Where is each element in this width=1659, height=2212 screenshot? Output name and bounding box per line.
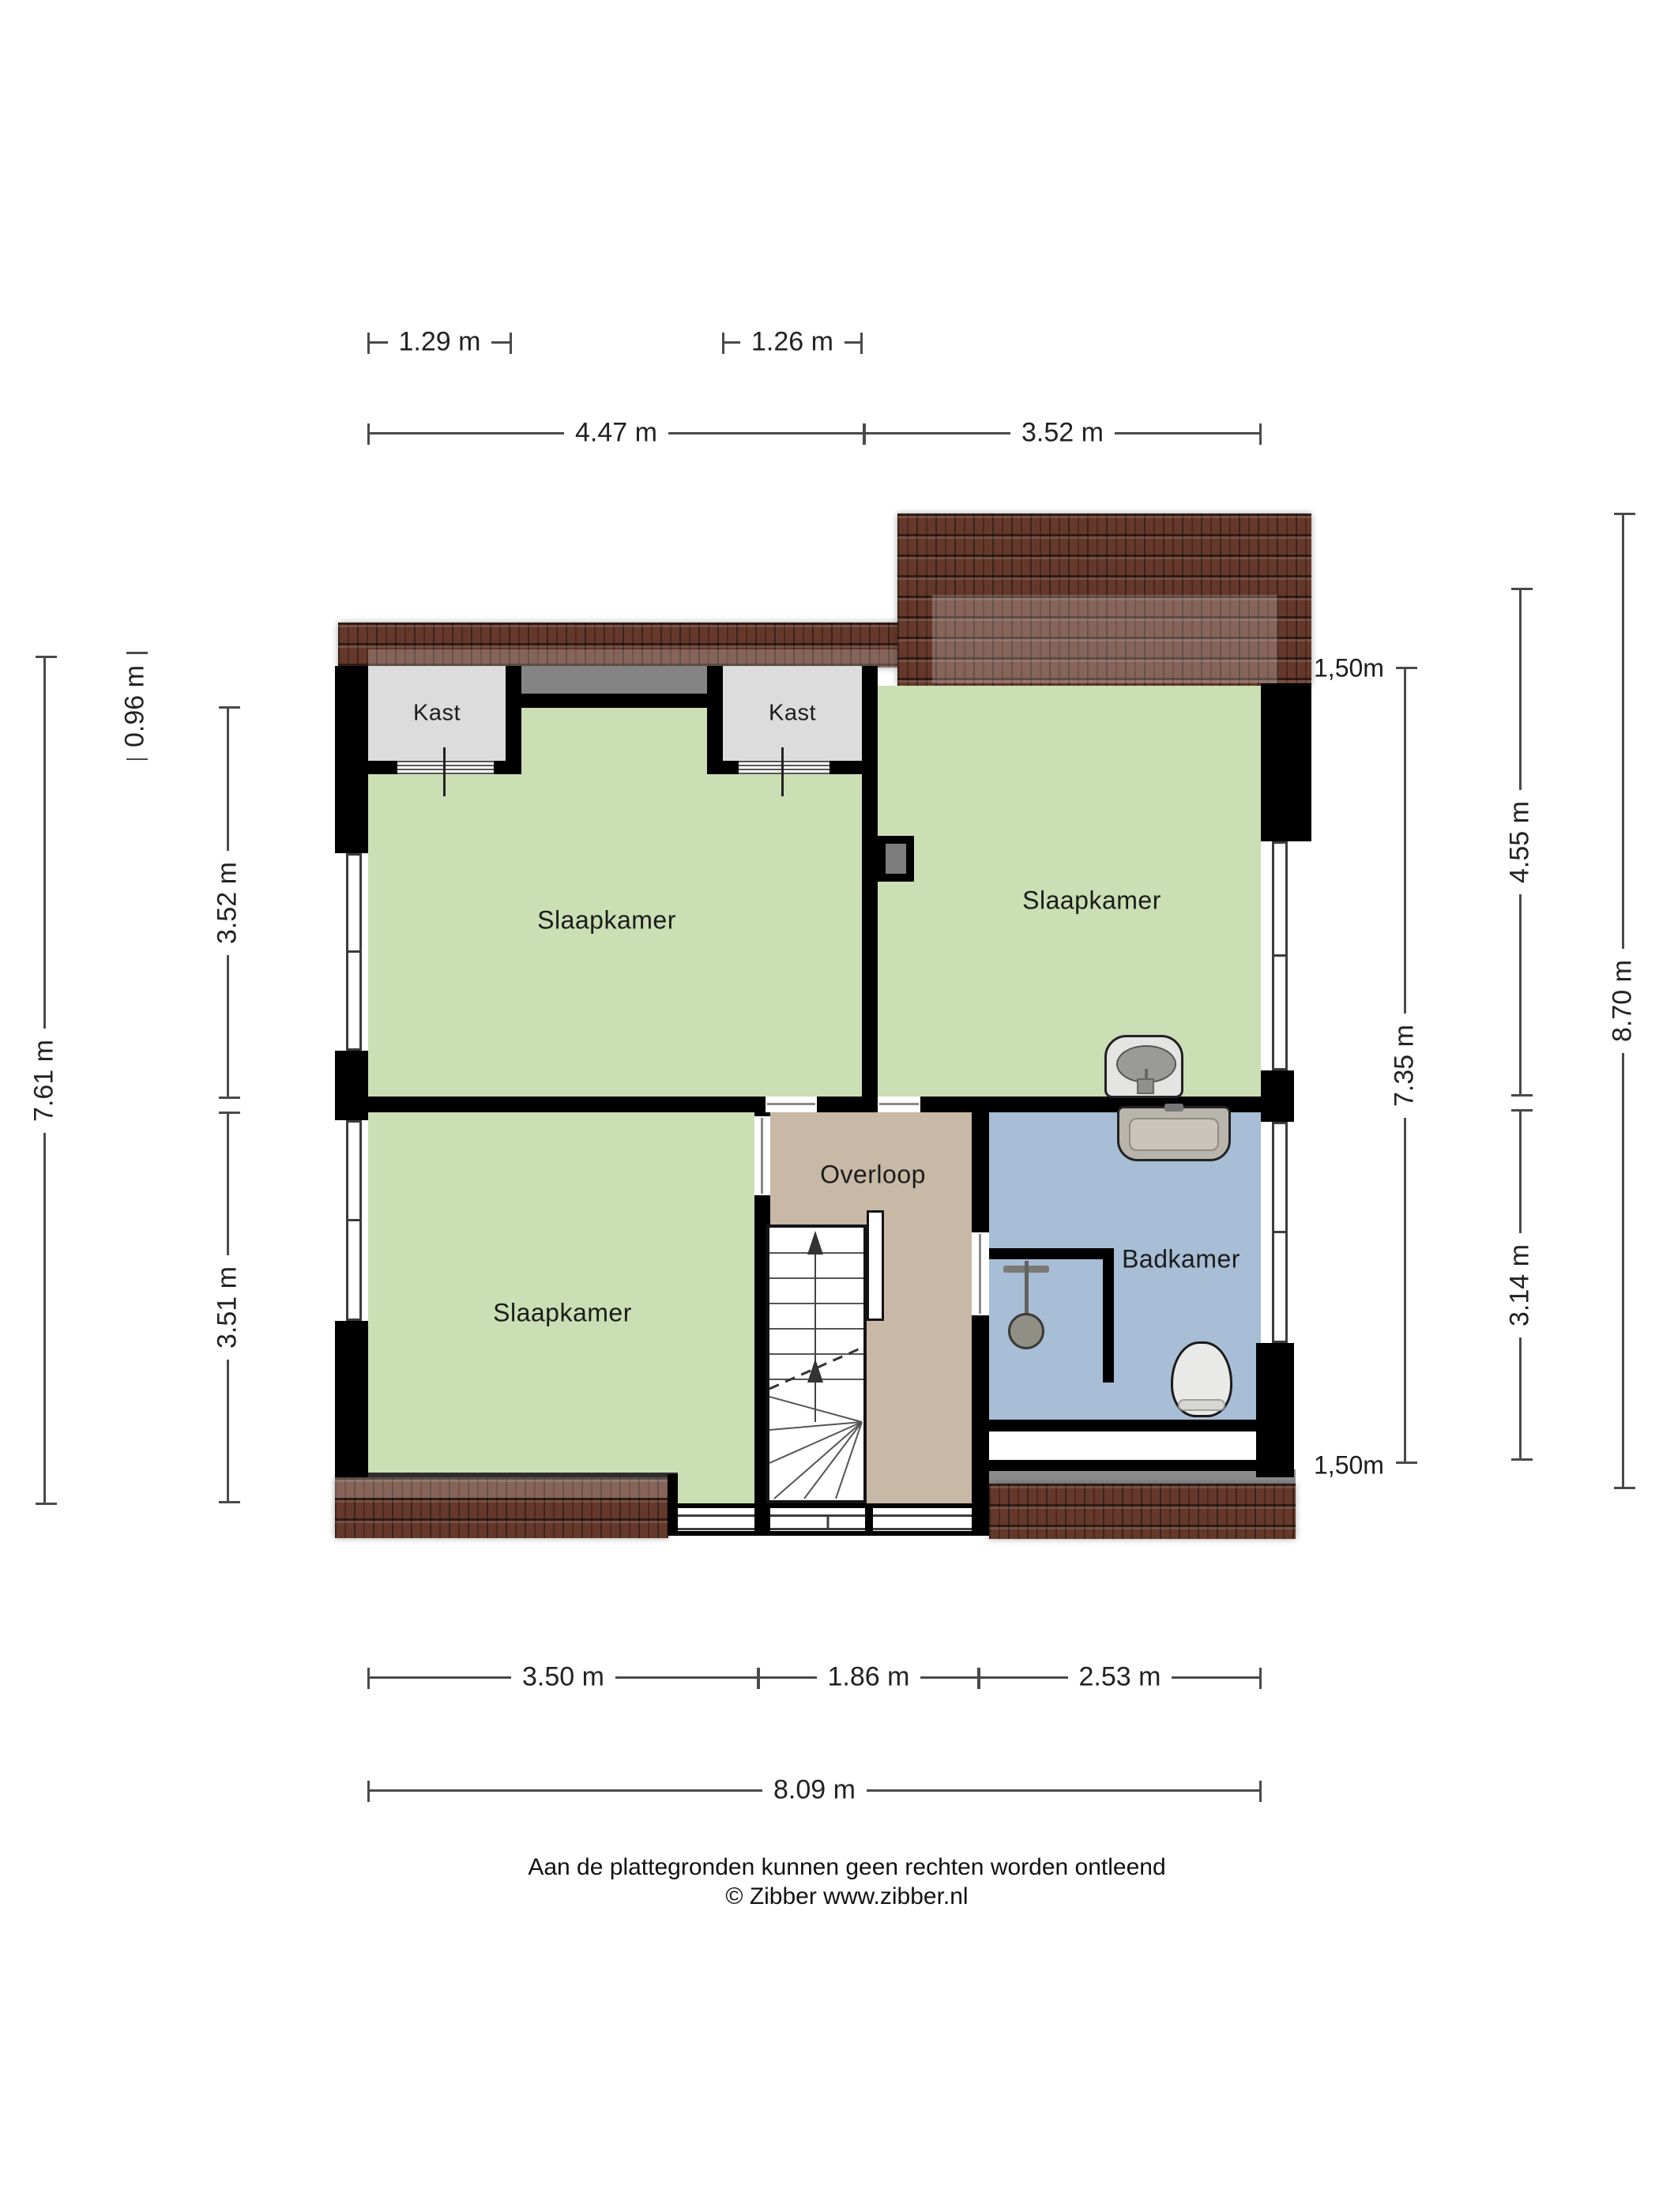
- landing-label: Overloop: [820, 1161, 926, 1190]
- closet-1-door: [397, 761, 494, 774]
- chimney-flue: [886, 844, 906, 874]
- window-left-top: [335, 853, 368, 1051]
- roof-overlay-top-left: [368, 649, 897, 668]
- roof-strip-bottom-right: [989, 1484, 1296, 1539]
- dim-left-7-61: 7.61 m: [43, 656, 46, 1504]
- void-area: [521, 666, 707, 694]
- exterior-wall-left-upper: [335, 666, 368, 853]
- bathroom-sink: [1117, 1106, 1231, 1161]
- dim-right-7-35: 7.35 m: [1404, 668, 1406, 1463]
- dim-top-4-47: 4.47 m: [368, 432, 864, 434]
- bedroom-top-left-label: Slaapkamer: [537, 906, 676, 935]
- dim-right-3-14: 3.14 m: [1519, 1110, 1522, 1460]
- door-bathroom: [972, 1232, 989, 1315]
- closet-2-door-leaf: [781, 747, 784, 796]
- bedroom-bottom-left-floor: [368, 1112, 754, 1476]
- staircase: [766, 1224, 867, 1503]
- bedroom-bottom-left-label: Slaapkamer: [493, 1299, 632, 1328]
- exterior-wall-left-lower: [335, 1321, 368, 1477]
- dim-left-3-51: 3.51 m: [227, 1112, 229, 1503]
- closet-2-label: Kast: [769, 701, 816, 727]
- toilet: [1171, 1341, 1232, 1417]
- shower-head: [1008, 1313, 1044, 1349]
- bathroom-label: Badkamer: [1122, 1245, 1240, 1274]
- bedroom-top-left-nook-floor: [521, 708, 707, 774]
- closet-2-bottom-wall-b: [829, 761, 862, 774]
- floorplan: Kast Kast Slaapkamer Slaapkamer Slaapkam…: [0, 0, 1659, 2212]
- exterior-wall-right-middle: [1261, 1070, 1294, 1122]
- dim-bottom-8-09: 8.09 m: [368, 1789, 1261, 1792]
- door-bedroom-top-right: [878, 1097, 920, 1112]
- door-bedroom-top-left: [766, 1097, 817, 1112]
- roof-overlay-bottom-left: [335, 1477, 668, 1498]
- shower-wall-vertical: [1103, 1248, 1114, 1382]
- window-right-bottom: [1261, 1122, 1294, 1343]
- bathroom-sink-basin: [1129, 1118, 1219, 1151]
- window-right-top: [1261, 841, 1294, 1070]
- kneewall-label-top: 1,50m: [1314, 654, 1384, 683]
- dim-top-1-26: 1.26 m: [723, 341, 862, 344]
- bathroom-bottom-wall: [989, 1420, 1261, 1431]
- void-bottom-wall: [521, 694, 707, 708]
- closet-1-bottom-wall-b: [494, 761, 521, 774]
- dim-bottom-3-50: 3.50 m: [368, 1676, 758, 1679]
- closet-1-label: Kast: [413, 701, 461, 727]
- bottom-band-pier-left: [668, 1474, 678, 1536]
- shadow-strip-bottom-right: [989, 1469, 1296, 1484]
- window-band-bottom: [668, 1503, 989, 1536]
- bathroom-left-wall: [972, 1097, 989, 1535]
- landing-left-wall-bottom-pier: [754, 1503, 770, 1536]
- bedroom-top-left-floor: [368, 774, 862, 1097]
- closet-1-right-wall: [506, 666, 521, 774]
- bathroom-sink-tap: [1164, 1104, 1183, 1112]
- closet-2-left-wall: [707, 666, 723, 774]
- shower-pipe: [1025, 1261, 1029, 1319]
- bedroom-sink-knob: [1137, 1078, 1154, 1094]
- exterior-wall-right-upper: [1261, 683, 1311, 841]
- disclaimer: Aan de plattegronden kunnen geen rechten…: [17, 1853, 1659, 1911]
- closet-2-bottom-wall-a: [723, 761, 739, 774]
- bedroom-bottom-left-kneewall-edge: [368, 1473, 678, 1477]
- door-bedroom-bottom-left: [754, 1116, 770, 1195]
- bedroom-top-right-label: Slaapkamer: [1022, 886, 1161, 916]
- dim-bottom-1-86: 1.86 m: [758, 1676, 979, 1679]
- bedroom-sink: [1104, 1035, 1183, 1098]
- exterior-wall-left-middle: [335, 1051, 368, 1120]
- dim-top-3-52: 3.52 m: [864, 432, 1261, 434]
- closet-1-door-leaf: [443, 747, 446, 796]
- dim-left-3-52: 3.52 m: [227, 707, 229, 1098]
- dim-left-0-96: 0.96 m: [134, 653, 137, 759]
- dim-bottom-2-53: 2.53 m: [979, 1676, 1261, 1679]
- dim-right-8-70: 8.70 m: [1622, 513, 1624, 1488]
- window-left-bottom: [335, 1120, 368, 1321]
- dim-right-4-55: 4.55 m: [1519, 589, 1522, 1096]
- bottom-band-pier-mid: [865, 1503, 873, 1536]
- disclaimer-line1: Aan de plattegronden kunnen geen rechten…: [17, 1853, 1659, 1882]
- kneewall-label-bottom: 1,50m: [1314, 1451, 1384, 1480]
- bathroom-kneewall-bottom: [989, 1460, 1294, 1471]
- closet-1-bottom-wall-a: [368, 761, 397, 774]
- bathroom-left-wall-bottom-pier: [972, 1503, 989, 1536]
- disclaimer-line2: © Zibber www.zibber.nl: [17, 1882, 1659, 1911]
- dim-top-1-29: 1.29 m: [368, 341, 511, 344]
- bedrooms-divider-wall: [862, 666, 878, 1097]
- stair-balustrade: [867, 1210, 884, 1321]
- staircase-treads: [769, 1228, 863, 1500]
- closet-2-door: [739, 761, 829, 774]
- bathroom-kneewall-band: [989, 1431, 1256, 1460]
- roof-overlay-top-right: [932, 595, 1277, 683]
- shower-wall-horizontal: [989, 1248, 1114, 1259]
- exterior-wall-right-lower: [1256, 1343, 1294, 1477]
- bedroom-bottom-left-nook-floor: [678, 1476, 754, 1506]
